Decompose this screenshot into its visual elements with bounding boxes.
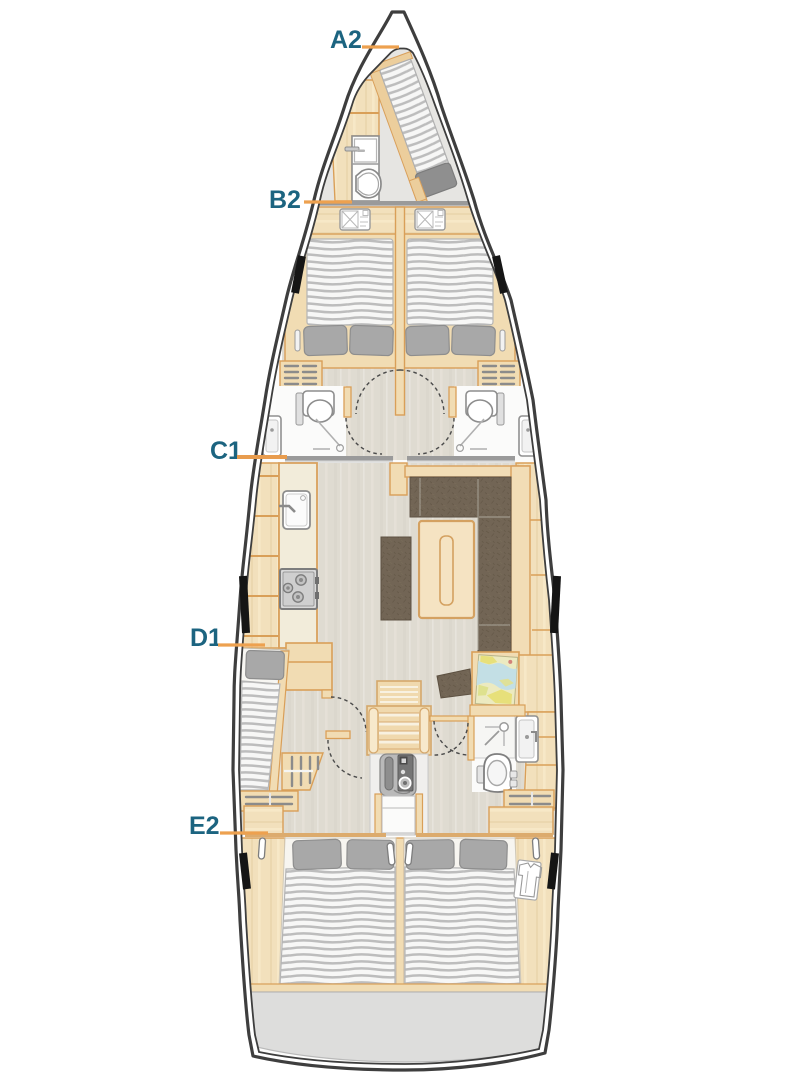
svg-text:E2: E2 bbox=[189, 812, 220, 840]
svg-text:B2: B2 bbox=[269, 186, 301, 214]
svg-text:C1: C1 bbox=[210, 437, 242, 465]
svg-text:A2: A2 bbox=[330, 26, 362, 54]
svg-text:D1: D1 bbox=[190, 624, 222, 652]
